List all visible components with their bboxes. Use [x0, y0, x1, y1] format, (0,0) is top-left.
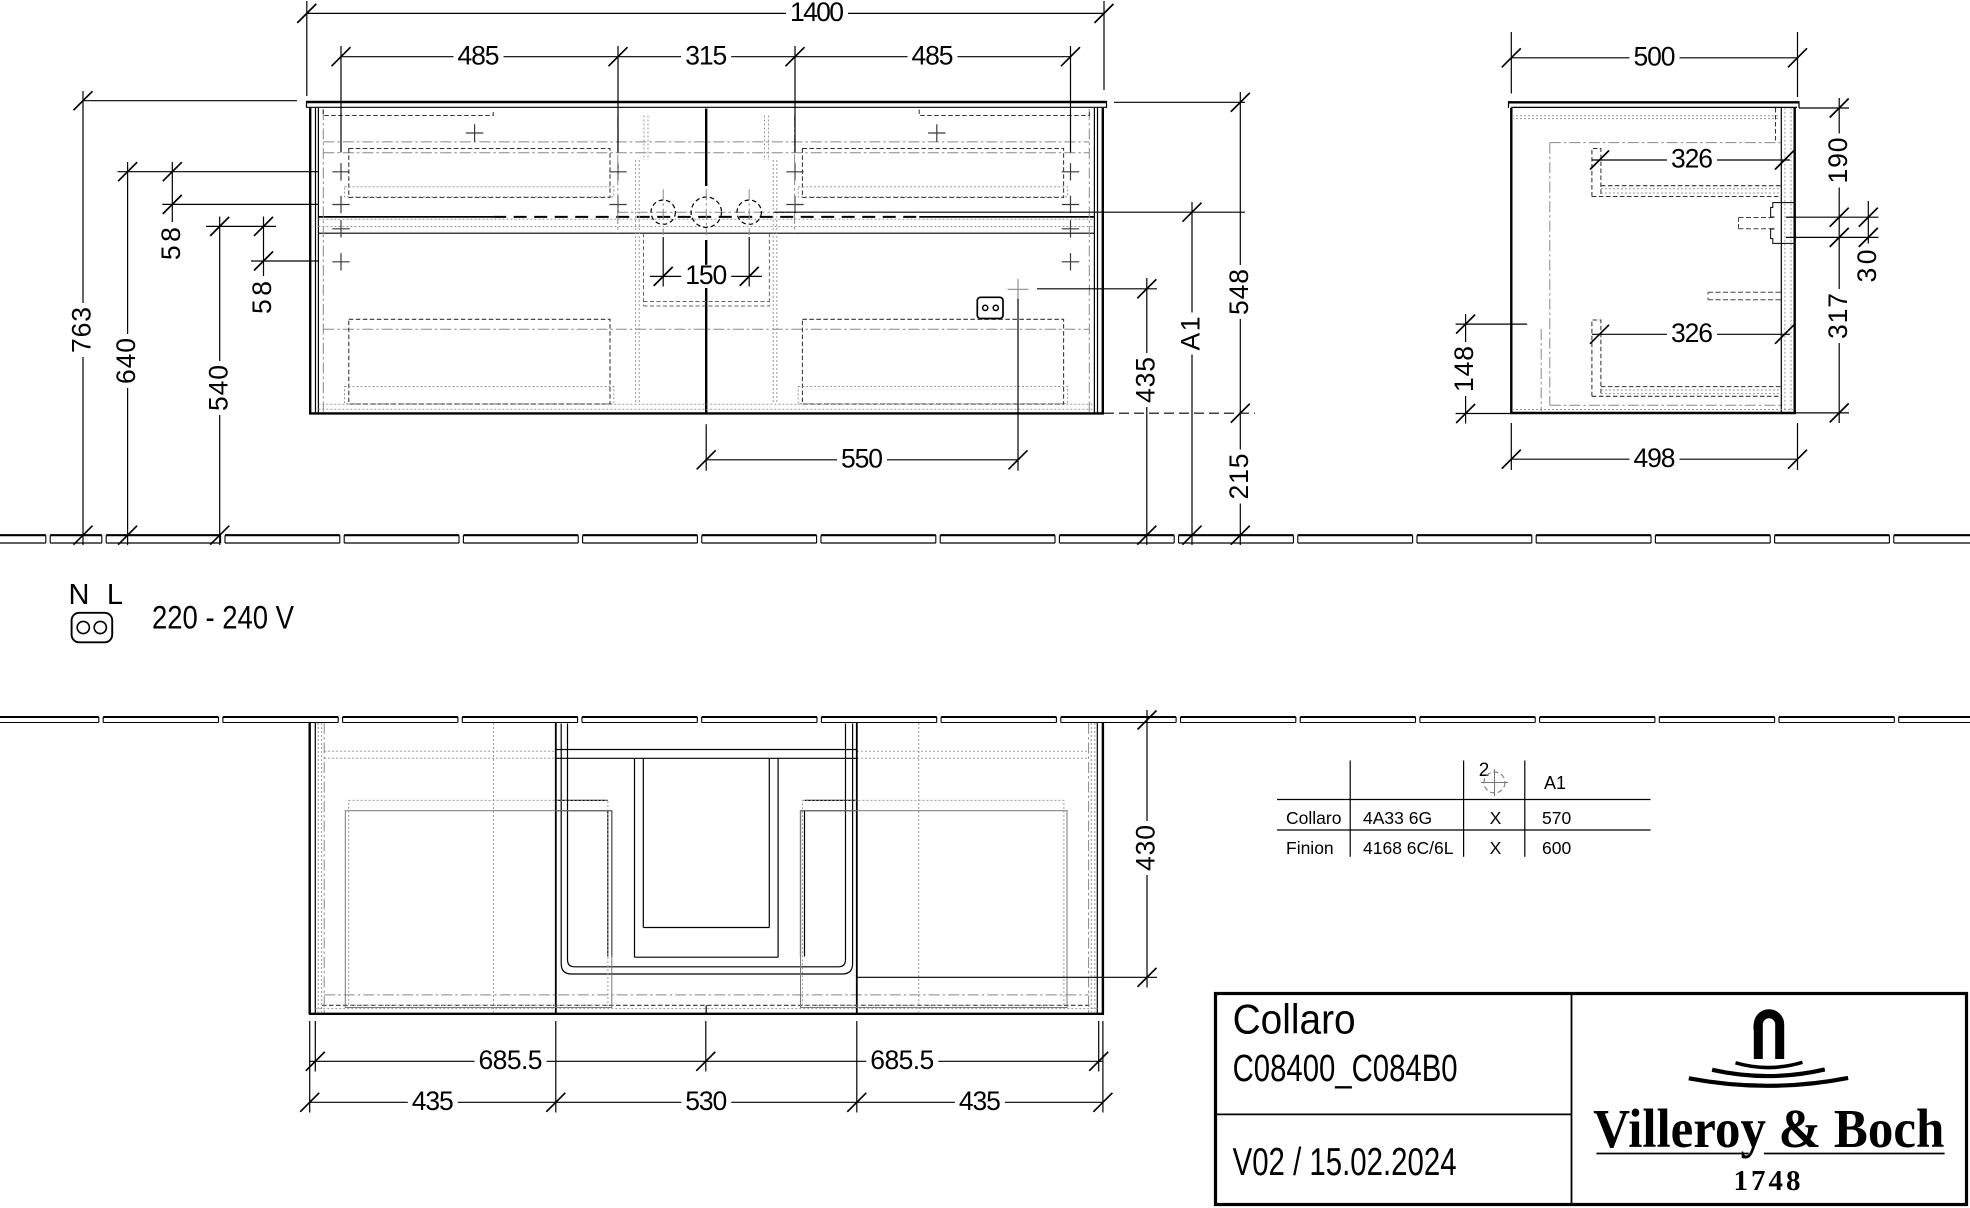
svg-text:500: 500 — [1634, 41, 1676, 71]
svg-text:435: 435 — [412, 1086, 454, 1116]
svg-text:Villeroy & Boch: Villeroy & Boch — [1593, 1098, 1944, 1159]
svg-text:685.5: 685.5 — [479, 1045, 543, 1075]
svg-text:190: 190 — [1823, 138, 1853, 184]
svg-text:N: N — [69, 579, 90, 611]
svg-text:150: 150 — [685, 260, 727, 290]
svg-text:548: 548 — [1224, 269, 1254, 315]
svg-text:540: 540 — [203, 365, 233, 411]
svg-text:Collaro: Collaro — [1233, 996, 1356, 1043]
svg-text:315: 315 — [685, 40, 727, 70]
svg-text:1400: 1400 — [790, 0, 844, 27]
svg-text:L: L — [107, 579, 123, 611]
svg-text:1748: 1748 — [1734, 1165, 1804, 1197]
svg-text:530: 530 — [685, 1086, 727, 1116]
svg-text:570: 570 — [1542, 808, 1571, 828]
svg-text:220 - 240 V: 220 - 240 V — [152, 600, 295, 636]
svg-text:148: 148 — [1449, 346, 1479, 392]
svg-text:430: 430 — [1131, 825, 1161, 871]
svg-text:4A33 6G: 4A33 6G — [1363, 808, 1432, 828]
svg-text:435: 435 — [959, 1086, 1001, 1116]
svg-text:Finion: Finion — [1286, 838, 1334, 858]
svg-text:2: 2 — [1479, 760, 1490, 781]
svg-text:215: 215 — [1224, 454, 1254, 500]
svg-text:4168 6C/6L: 4168 6C/6L — [1363, 838, 1454, 858]
svg-text:X: X — [1490, 808, 1502, 828]
svg-text:498: 498 — [1634, 443, 1676, 473]
svg-text:763: 763 — [67, 307, 97, 353]
svg-text:685.5: 685.5 — [870, 1045, 934, 1075]
svg-text:326: 326 — [1671, 318, 1713, 348]
svg-text:435: 435 — [1130, 357, 1160, 403]
svg-text:326: 326 — [1671, 144, 1713, 174]
svg-text:317: 317 — [1823, 293, 1853, 339]
svg-text:Collaro: Collaro — [1286, 808, 1341, 828]
svg-text:550: 550 — [841, 443, 883, 473]
svg-text:V02 / 15.02.2024: V02 / 15.02.2024 — [1233, 1141, 1457, 1184]
svg-text:600: 600 — [1542, 838, 1571, 858]
svg-text:640: 640 — [111, 338, 141, 384]
svg-text:485: 485 — [458, 40, 500, 70]
svg-text:485: 485 — [912, 40, 954, 70]
svg-text:A1: A1 — [1176, 317, 1206, 351]
svg-text:X: X — [1490, 838, 1502, 858]
svg-text:C08400_C084B0: C08400_C084B0 — [1233, 1048, 1458, 1090]
svg-text:A1: A1 — [1544, 773, 1566, 793]
